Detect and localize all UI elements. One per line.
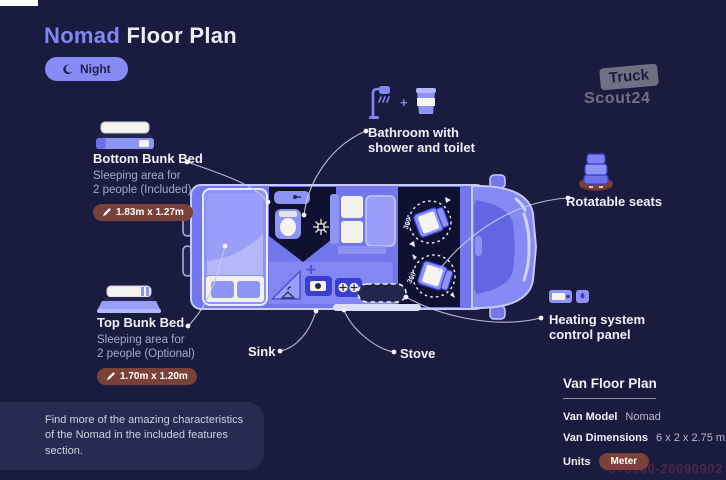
callout-rotatable-seats: Rotatable seats bbox=[566, 149, 662, 209]
floor-plan-infographic: Nomad Floor Plan Night Truck Scout24 bbox=[0, 0, 726, 480]
toilet-icon bbox=[275, 209, 301, 239]
callout-bottom-bunk: Bottom Bunk Bed Sleeping area for 2 peop… bbox=[93, 120, 203, 222]
side-step bbox=[333, 304, 421, 311]
heating-label: Heating system control panel bbox=[549, 312, 645, 343]
bottom-bunk-dimensions-badge: 1.83m x 1.27m bbox=[93, 204, 193, 221]
pencil-icon bbox=[106, 372, 115, 381]
heating-panel-icon bbox=[549, 289, 589, 304]
seat-icon bbox=[574, 149, 618, 192]
heating-panel-location bbox=[358, 284, 406, 302]
toilet-icon bbox=[414, 87, 438, 117]
top-bunk-bed-icon bbox=[97, 284, 161, 315]
callout-heating: Heating system control panel bbox=[549, 289, 645, 343]
sink-unit bbox=[305, 276, 332, 296]
rotatable-seats-label: Rotatable seats bbox=[566, 194, 662, 209]
brand-watermark: Truck Scout24 bbox=[584, 66, 658, 108]
bottom-bunk-subtitle: Sleeping area for 2 people (Included) bbox=[93, 169, 203, 198]
van-bed bbox=[203, 189, 267, 305]
brand-badge: Truck bbox=[599, 64, 659, 91]
callout-top-bunk: Top Bunk Bed Sleeping area for 2 people … bbox=[97, 284, 197, 386]
listing-code-watermark: 573980-26090902 bbox=[608, 461, 723, 476]
footer-note: Find more of the amazing characteristics… bbox=[0, 402, 264, 470]
bathroom-label: Bathroom with shower and toilet bbox=[368, 125, 475, 156]
bottom-bunk-bed-icon bbox=[93, 120, 157, 151]
page-title: Nomad Floor Plan bbox=[44, 23, 237, 49]
callout-bathroom: + Bathroom with shower and toilet bbox=[368, 85, 475, 156]
page-title-accent: Nomad bbox=[44, 23, 120, 48]
page-title-rest: Floor Plan bbox=[120, 23, 237, 48]
plus-sign: + bbox=[400, 95, 408, 110]
info-row-dimensions: Van Dimensions 6 x 2 x 2.75 m bbox=[563, 432, 726, 444]
sink-label: Sink bbox=[248, 344, 275, 359]
info-panel-divider bbox=[563, 398, 656, 399]
moon-icon bbox=[62, 64, 73, 75]
pencil-icon bbox=[102, 208, 111, 217]
bottom-bunk-title: Bottom Bunk Bed bbox=[93, 151, 203, 166]
van-floor-plan-illustration: 360° 360° bbox=[178, 172, 548, 322]
night-mode-toggle[interactable]: Night bbox=[45, 57, 128, 81]
brand-name: Scout24 bbox=[584, 90, 658, 108]
info-panel-title: Van Floor Plan bbox=[563, 376, 726, 391]
night-mode-label: Night bbox=[80, 62, 111, 76]
stove-label: Stove bbox=[400, 346, 435, 361]
info-row-model: Van Model Nomad bbox=[563, 411, 726, 423]
stove-unit bbox=[335, 278, 362, 297]
top-bunk-title: Top Bunk Bed bbox=[97, 315, 197, 330]
steering-wheel bbox=[475, 236, 482, 256]
scan-artifact bbox=[0, 0, 38, 6]
top-bunk-dimensions-badge: 1.70m x 1.20m bbox=[97, 368, 197, 385]
shower-icon bbox=[368, 85, 394, 119]
top-bunk-subtitle: Sleeping area for 2 people (Optional) bbox=[97, 333, 197, 362]
